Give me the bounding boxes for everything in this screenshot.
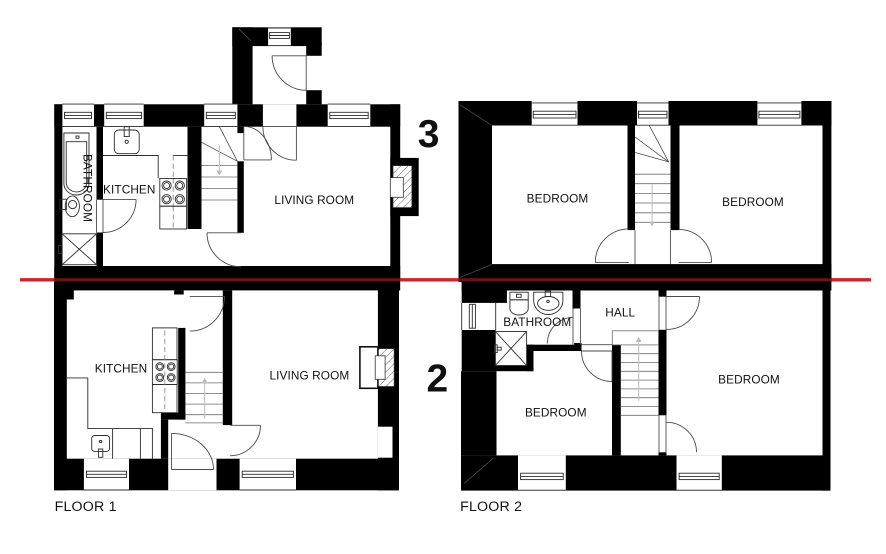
svg-text:BEDROOM: BEDROOM bbox=[525, 405, 587, 419]
svg-text:FLOOR 2: FLOOR 2 bbox=[460, 499, 522, 515]
svg-text:HALL: HALL bbox=[605, 306, 635, 320]
svg-text:BATHROOM: BATHROOM bbox=[503, 315, 571, 329]
svg-text:2: 2 bbox=[427, 358, 449, 401]
svg-text:FLOOR 1: FLOOR 1 bbox=[55, 499, 117, 515]
svg-text:KITCHEN: KITCHEN bbox=[95, 361, 147, 375]
svg-text:BEDROOM: BEDROOM bbox=[718, 372, 780, 386]
svg-text:3: 3 bbox=[418, 113, 440, 156]
svg-text:KITCHEN: KITCHEN bbox=[103, 182, 155, 196]
svg-text:BEDROOM: BEDROOM bbox=[527, 191, 589, 205]
svg-text:LIVING ROOM: LIVING ROOM bbox=[270, 369, 350, 383]
svg-text:LIVING ROOM: LIVING ROOM bbox=[274, 193, 354, 207]
svg-text:BEDROOM: BEDROOM bbox=[722, 195, 784, 209]
svg-text:BATHROOM: BATHROOM bbox=[81, 154, 95, 222]
